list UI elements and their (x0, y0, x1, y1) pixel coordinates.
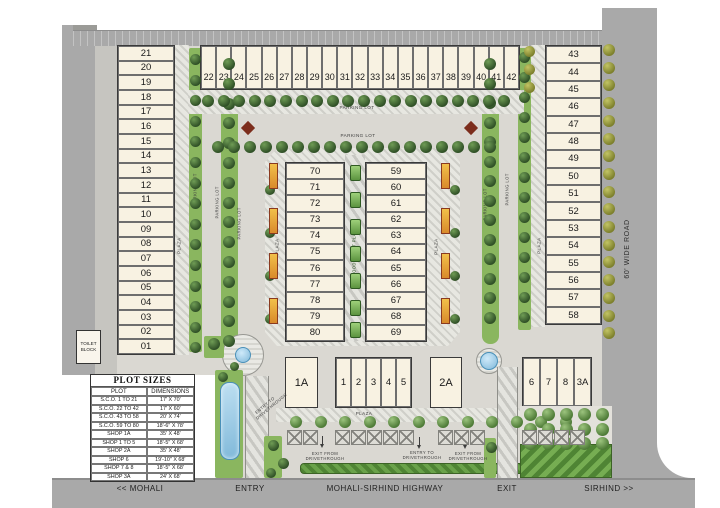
plot-cell: 44 (546, 63, 601, 80)
plot-cell: 18 (118, 90, 174, 105)
plot-cell: 26 (262, 46, 277, 89)
food-kiosk-icon (350, 192, 361, 208)
tree-icon (603, 97, 615, 109)
plot-cell: 52 (546, 202, 601, 219)
table-cell: S.C.O. 1 TO 21 (91, 396, 147, 405)
plot-cell: 06 (118, 266, 174, 281)
tree-icon (436, 95, 448, 107)
plot-cell: 65 (366, 260, 426, 276)
tree-icon (327, 95, 339, 107)
plot-cell: 08 (118, 237, 174, 252)
center-east-strip: 5960616263646566676869 (365, 162, 427, 342)
table-cell: SHOP 2A (91, 447, 147, 456)
tree-icon (190, 260, 201, 271)
plot-cell: 76 (286, 260, 344, 276)
plot-cell: 13 (118, 163, 174, 178)
plot-cell: 32 (352, 46, 367, 89)
table-row: S.C.O. 59 TO 8018'-6" X 78' (91, 422, 194, 431)
tree-icon (603, 168, 615, 180)
tree-icon (388, 416, 400, 428)
tree-icon (218, 372, 228, 382)
entry-label: ENTRY (220, 484, 280, 493)
tree-icon (374, 95, 386, 107)
tree-icon (519, 252, 530, 263)
tree-icon (484, 58, 496, 70)
kiosk-icon (269, 253, 278, 279)
shops-1-to-5: 12345 (335, 357, 412, 408)
table-header-plot: PLOT (91, 387, 147, 396)
tree-icon (308, 141, 320, 153)
roundabout-fountain (235, 347, 251, 363)
kiosk-icon (441, 298, 450, 324)
tree-icon (230, 362, 239, 371)
tree-icon (524, 64, 535, 75)
tree-icon (208, 338, 220, 350)
plot-cell: 51 (546, 185, 601, 202)
table-row: S.C.O. 1 TO 2117' X 70' (91, 396, 194, 405)
tree-icon (519, 232, 530, 243)
tree-icon (190, 281, 201, 292)
plot-cell: 58 (546, 307, 601, 324)
tree-icon (223, 78, 235, 90)
plot-cell: 12 (118, 178, 174, 193)
plot-cell: 25 (246, 46, 261, 89)
tree-icon (436, 141, 448, 153)
tree-icon (603, 44, 615, 56)
right-sco-strip: 43444546474849505152535455565758 (545, 45, 602, 325)
tree-icon (223, 296, 235, 308)
arrow-down-icon (322, 436, 323, 445)
plot-cell: 74 (286, 228, 344, 244)
tree-icon (596, 423, 609, 436)
tree-icon (190, 219, 201, 230)
tree-icon (437, 416, 449, 428)
plot-cell: 73 (286, 212, 344, 228)
plot-cell: 14 (118, 149, 174, 164)
shop-cell: 3A (574, 358, 591, 406)
tree-icon (266, 468, 276, 478)
shop-cell: 1 (336, 358, 351, 407)
tree-icon (462, 416, 474, 428)
parking-stall-icon (522, 430, 537, 445)
tree-icon (244, 141, 256, 153)
table-cell: 19'-10" X 68' (147, 456, 194, 465)
tree-icon (484, 253, 496, 265)
food-kiosk-icon (350, 322, 361, 338)
plot-cell: 29 (307, 46, 322, 89)
tree-icon (519, 92, 530, 103)
table-row: SHOP 619'-10" X 68' (91, 456, 194, 465)
tree-icon (223, 157, 235, 169)
left-sidewalk (95, 30, 117, 375)
plot-cell: 39 (458, 46, 473, 89)
tree-icon (268, 440, 279, 451)
table-row: S.C.O. 43 TO 5820' X 74' (91, 413, 194, 422)
plot-cell: 17 (118, 105, 174, 120)
plot-cell: 49 (546, 150, 601, 167)
plaza-label: PLAZA (344, 411, 384, 416)
parking-stall-icon (570, 430, 585, 445)
plot-cell: 61 (366, 195, 426, 211)
plot-cell: 79 (286, 309, 344, 325)
plot-cell: 21 (118, 46, 174, 61)
tree-icon (404, 141, 416, 153)
tree-icon (524, 46, 535, 57)
table-row: SHOP 1A35' X 48' (91, 430, 194, 439)
plot-cell: 69 (366, 325, 426, 341)
parking-stall-icon (383, 430, 398, 445)
plot-cell: 15 (118, 134, 174, 149)
plot-cell: 02 (118, 325, 174, 340)
table-cell: 18'-5" X 68' (147, 439, 194, 448)
highway-road (52, 478, 695, 508)
tree-icon (603, 62, 615, 74)
tree-icon (560, 408, 573, 421)
center-west-strip: 7071727374757677787980 (285, 162, 345, 342)
plot-sizes-header: PLOT DIMENSIONS (91, 387, 194, 396)
plot-cell: 28 (292, 46, 307, 89)
table-row: SHOP 3A24' X 68' (91, 473, 194, 482)
table-cell: S.C.O. 43 TO 58 (91, 413, 147, 422)
plot-cell: 64 (366, 244, 426, 260)
food-kiosk-icon (350, 273, 361, 289)
plot-cell: 45 (546, 81, 601, 98)
tree-icon (372, 141, 384, 153)
tree-icon (596, 437, 609, 450)
kiosk-icon (441, 208, 450, 234)
plot-cell: 35 (398, 46, 413, 89)
plot-cell: 77 (286, 276, 344, 292)
plot-cell: 48 (546, 133, 601, 150)
tree-icon (190, 322, 201, 333)
kiosk-icon (269, 208, 278, 234)
plot-cell: 53 (546, 220, 601, 237)
tree-icon (223, 58, 235, 70)
food-kiosk-icon (350, 219, 361, 235)
plaza-label: PLAZA (536, 226, 541, 266)
tree-icon (484, 312, 496, 324)
tree-icon (190, 75, 201, 86)
parking-stall-icon (554, 430, 569, 445)
table-cell: S.C.O. 59 TO 80 (91, 422, 147, 431)
shop-cell: 8 (557, 358, 574, 406)
parking-lot-label: PARKING LOT (238, 198, 243, 248)
tree-icon (484, 234, 496, 246)
plot-cell: 20 (118, 61, 174, 76)
tree-icon (223, 177, 235, 189)
parking-lot-label: PARKING LOT (506, 164, 511, 214)
tree-icon (483, 95, 495, 107)
plot-cell: 07 (118, 251, 174, 266)
tree-icon (315, 416, 327, 428)
parking-stall-icon (303, 430, 318, 445)
tree-icon (339, 416, 351, 428)
parking-stall-icon (454, 430, 469, 445)
tree-icon (484, 117, 496, 129)
plot-cell: 80 (286, 325, 344, 341)
shop-cell: 7 (540, 358, 557, 406)
plot-cell: 03 (118, 310, 174, 325)
tree-icon (452, 141, 464, 153)
plot-cell: 43 (546, 46, 601, 63)
food-kiosk-icon (350, 300, 361, 316)
plot-cell: 38 (443, 46, 458, 89)
plot-cell: 67 (366, 292, 426, 308)
shop-cell: 3 (366, 358, 381, 407)
parking-stall-icon (351, 430, 366, 445)
plot-sizes-title: PLOT SIZES (91, 375, 194, 387)
tree-icon (519, 172, 530, 183)
mohali-direction-label: << MOHALI (100, 484, 180, 493)
tree-icon (249, 95, 261, 107)
parking-stall-icon (470, 430, 485, 445)
plot-cell: 16 (118, 119, 174, 134)
tree-icon (450, 228, 460, 238)
tree-icon (484, 141, 496, 153)
table-cell: 17' X 60' (147, 405, 194, 414)
tree-icon (223, 256, 235, 268)
left-sco-strip: 2120191817161514131211100908070605040302… (117, 45, 175, 355)
plot-cell: 09 (118, 222, 174, 237)
tree-icon (190, 54, 201, 65)
tree-icon (484, 78, 496, 90)
plot-cell: 33 (368, 46, 383, 89)
table-cell: SHOP 7 & 8 (91, 464, 147, 473)
tree-icon (519, 212, 530, 223)
tree-icon (420, 141, 432, 153)
tree-icon (452, 95, 464, 107)
shop-cell: 4 (381, 358, 396, 407)
plot-cell: 27 (277, 46, 292, 89)
plaza-fountain (480, 352, 498, 370)
top-sco-strip: 2223242526272829303132333435363738394041… (200, 45, 520, 90)
plot-cell: 50 (546, 168, 601, 185)
tree-icon (484, 156, 496, 168)
plot-cell: 46 (546, 98, 601, 115)
tree-icon (450, 314, 460, 324)
site-plan: 2120191817161514131211100908070605040302… (0, 0, 720, 508)
table-cell: S.C.O. 22 TO 42 (91, 405, 147, 414)
plot-cell: 62 (366, 212, 426, 228)
tree-icon (190, 178, 201, 189)
plot-cell: 31 (337, 46, 352, 89)
plot-cell: 66 (366, 276, 426, 292)
plot-cell: 71 (286, 179, 344, 195)
tree-icon (356, 141, 368, 153)
tree-icon (519, 312, 530, 323)
plaza-label: PLAZA (176, 226, 181, 266)
table-row: SHOP 2A35' X 48' (91, 447, 194, 456)
tree-icon (511, 416, 523, 428)
parking-stall-icon (399, 430, 414, 445)
plot-cell: 55 (546, 255, 601, 272)
table-cell: 20' X 74' (147, 413, 194, 422)
parking-stall-icon (438, 430, 453, 445)
pond (220, 382, 240, 460)
tree-icon (228, 141, 240, 153)
parking-lot-label: PARKING LOT (216, 177, 221, 227)
tree-icon (603, 221, 615, 233)
kiosk-icon (441, 163, 450, 189)
tree-icon (603, 186, 615, 198)
tree-icon (603, 133, 615, 145)
table-cell: SHOP 1A (91, 430, 147, 439)
tree-icon (468, 141, 480, 153)
wide-road-label: 60' WIDE ROAD (624, 209, 632, 289)
tree-icon (223, 276, 235, 288)
sirhind-direction-label: SIRHIND >> (569, 484, 649, 493)
tree-icon (450, 185, 460, 195)
table-cell: SHOP 1 TO 5 (91, 439, 147, 448)
tree-icon (524, 82, 535, 93)
table-cell: 18'-5" X 68' (147, 464, 194, 473)
tree-icon (324, 141, 336, 153)
table-cell: 24' X 68' (147, 473, 194, 482)
food-kiosk-icon (350, 165, 361, 181)
tree-icon (276, 141, 288, 153)
plot-cell: 70 (286, 163, 344, 179)
tree-icon (486, 442, 497, 453)
tree-icon (519, 132, 530, 143)
table-row: SHOP 1 TO 518'-5" X 68' (91, 439, 194, 448)
tree-icon (519, 152, 530, 163)
toilet-block: TOILET BLOCK (76, 330, 101, 364)
plot-cell: 34 (383, 46, 398, 89)
tree-icon (542, 408, 555, 421)
parking-stall-icon (367, 430, 382, 445)
tree-icon (519, 192, 530, 203)
exit-drivethrough-label: EXIT FROM DRIVETHROUGH (300, 452, 350, 462)
table-cell: SHOP 6 (91, 456, 147, 465)
plot-cell: 59 (366, 163, 426, 179)
tree-icon (340, 141, 352, 153)
table-cell: 35' X 48' (147, 447, 194, 456)
tree-icon (486, 416, 498, 428)
plot-sizes-table: PLOT SIZES PLOT DIMENSIONS S.C.O. 1 TO 2… (90, 374, 195, 482)
tree-icon (202, 95, 214, 107)
kiosk-icon (269, 163, 278, 189)
kiosk-icon (441, 253, 450, 279)
entry-drivethrough-label: ENTRY TO DRIVETHROUGH (397, 451, 447, 461)
parking-stall-icon (335, 430, 350, 445)
tree-icon (190, 116, 201, 127)
tree-icon (388, 141, 400, 153)
tree-icon (484, 195, 496, 207)
parking-stall-icon (538, 430, 553, 445)
shops-6-to-3a: 6783A (522, 357, 592, 407)
tree-icon (578, 408, 591, 421)
tree-icon (290, 416, 302, 428)
plot-sizes-rows: S.C.O. 1 TO 2117' X 70'S.C.O. 22 TO 4217… (91, 396, 194, 481)
tree-icon (190, 157, 201, 168)
plot-cell: 19 (118, 75, 174, 90)
tree-icon (524, 408, 537, 421)
plot-cell: 78 (286, 292, 344, 308)
tree-icon (450, 271, 460, 281)
tree-icon (413, 416, 425, 428)
tree-icon (603, 310, 615, 322)
plot-cell: 11 (118, 193, 174, 208)
plot-cell: 04 (118, 295, 174, 310)
tree-icon (596, 408, 609, 421)
tree-icon (603, 274, 615, 286)
table-cell: 18'-6" X 78' (147, 422, 194, 431)
kiosk-icon (269, 298, 278, 324)
exit-label: EXIT (482, 484, 532, 493)
table-row: S.C.O. 22 TO 4217' X 60' (91, 405, 194, 414)
plot-cell: 22 (201, 46, 216, 89)
tree-icon (519, 292, 530, 303)
shop-cell: 2 (351, 358, 366, 407)
plot-cell: 42 (504, 46, 519, 89)
shop-cell: 6 (523, 358, 540, 406)
plot-cell: 72 (286, 195, 344, 211)
plot-cell: 75 (286, 244, 344, 260)
shop-1a: 1A (285, 357, 318, 408)
arrow-down-icon (419, 437, 420, 446)
plaza-label: PLAZA (433, 227, 438, 267)
tree-icon (484, 214, 496, 226)
tree-icon (484, 273, 496, 285)
tree-icon (260, 141, 272, 153)
plot-cell: 56 (546, 272, 601, 289)
plot-cell: 36 (413, 46, 428, 89)
tree-icon (519, 112, 530, 123)
table-row: SHOP 7 & 818'-5" X 68' (91, 464, 194, 473)
parking-stall-icon (287, 430, 302, 445)
table-cell: 17' X 70' (147, 396, 194, 405)
tree-icon (296, 95, 308, 107)
tree-icon (358, 95, 370, 107)
plot-cell: 05 (118, 281, 174, 296)
plot-cell: 60 (366, 179, 426, 195)
shop-2a: 2A (430, 357, 462, 408)
tree-icon (484, 292, 496, 304)
plot-cell: 10 (118, 207, 174, 222)
left-road (62, 25, 95, 375)
plot-cell: 37 (428, 46, 443, 89)
tree-icon (212, 141, 224, 153)
tree-icon (603, 292, 615, 304)
tree-icon (405, 95, 417, 107)
plot-cell: 30 (322, 46, 337, 89)
plot-cell: 01 (118, 339, 174, 354)
highway-name-label: MOHALI-SIRHIND HIGHWAY (305, 484, 465, 493)
shop-cell: 5 (396, 358, 411, 407)
tree-icon (278, 458, 289, 469)
tree-icon (280, 95, 292, 107)
exit-drivethrough-label: EXIT FROM DRIVETHROUGH (443, 452, 493, 462)
parking-lot-label: PARKING LOT (328, 133, 388, 138)
left-plaza-walk (175, 45, 189, 355)
plot-cell: 68 (366, 309, 426, 325)
top-road (73, 30, 657, 46)
tree-icon (364, 416, 376, 428)
tree-icon (218, 95, 230, 107)
plot-cell: 57 (546, 289, 601, 306)
tree-icon (484, 175, 496, 187)
tree-icon (519, 272, 530, 283)
table-header-dimensions: DIMENSIONS (147, 387, 194, 396)
table-cell: 35' X 48' (147, 430, 194, 439)
plot-cell: 54 (546, 237, 601, 254)
food-kiosk-icon (350, 246, 361, 262)
table-cell: SHOP 3A (91, 473, 147, 482)
tree-icon (603, 115, 615, 127)
plot-cell: 63 (366, 228, 426, 244)
tree-icon (223, 197, 235, 209)
plot-cell: 47 (546, 116, 601, 133)
